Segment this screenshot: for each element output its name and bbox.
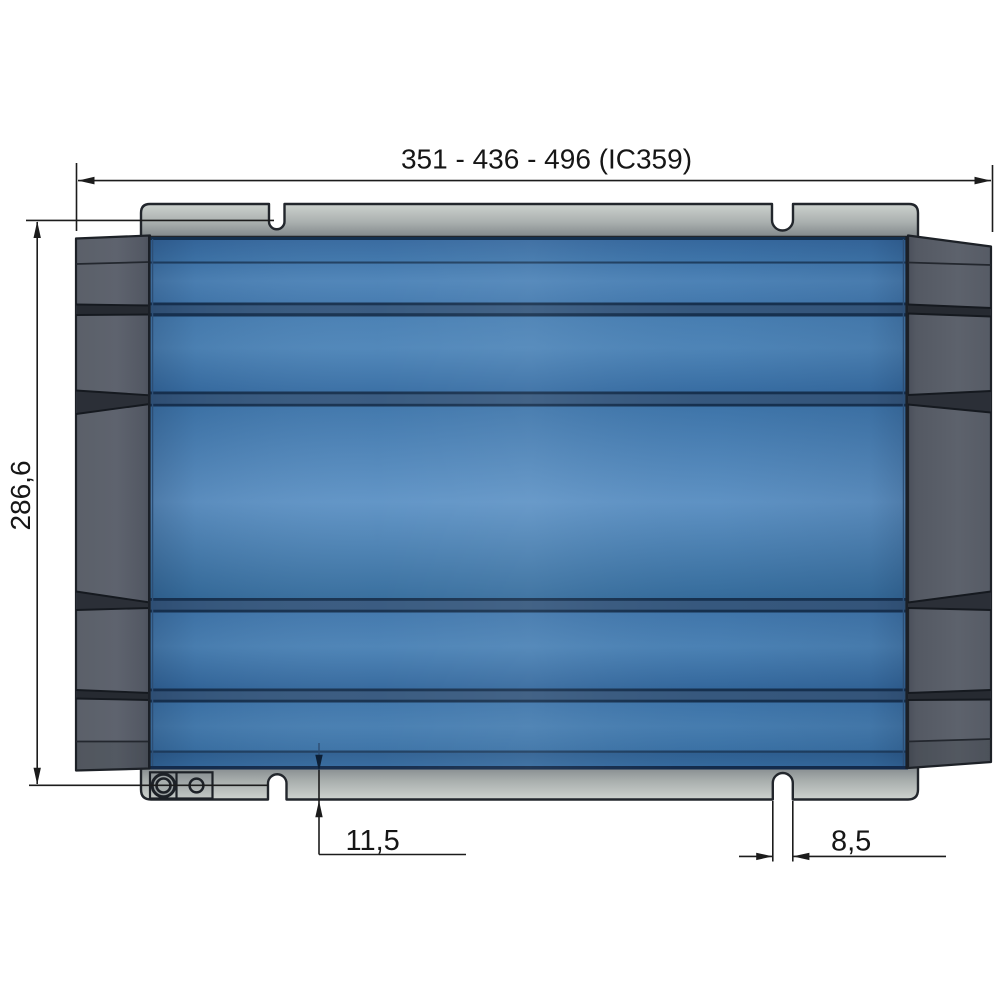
svg-text:11,5: 11,5 — [346, 825, 400, 857]
svg-text:8,5: 8,5 — [831, 826, 871, 858]
svg-text:286,6: 286,6 — [5, 460, 36, 530]
svg-text:351 - 436 - 496 (IC359): 351 - 436 - 496 (IC359) — [401, 144, 692, 175]
